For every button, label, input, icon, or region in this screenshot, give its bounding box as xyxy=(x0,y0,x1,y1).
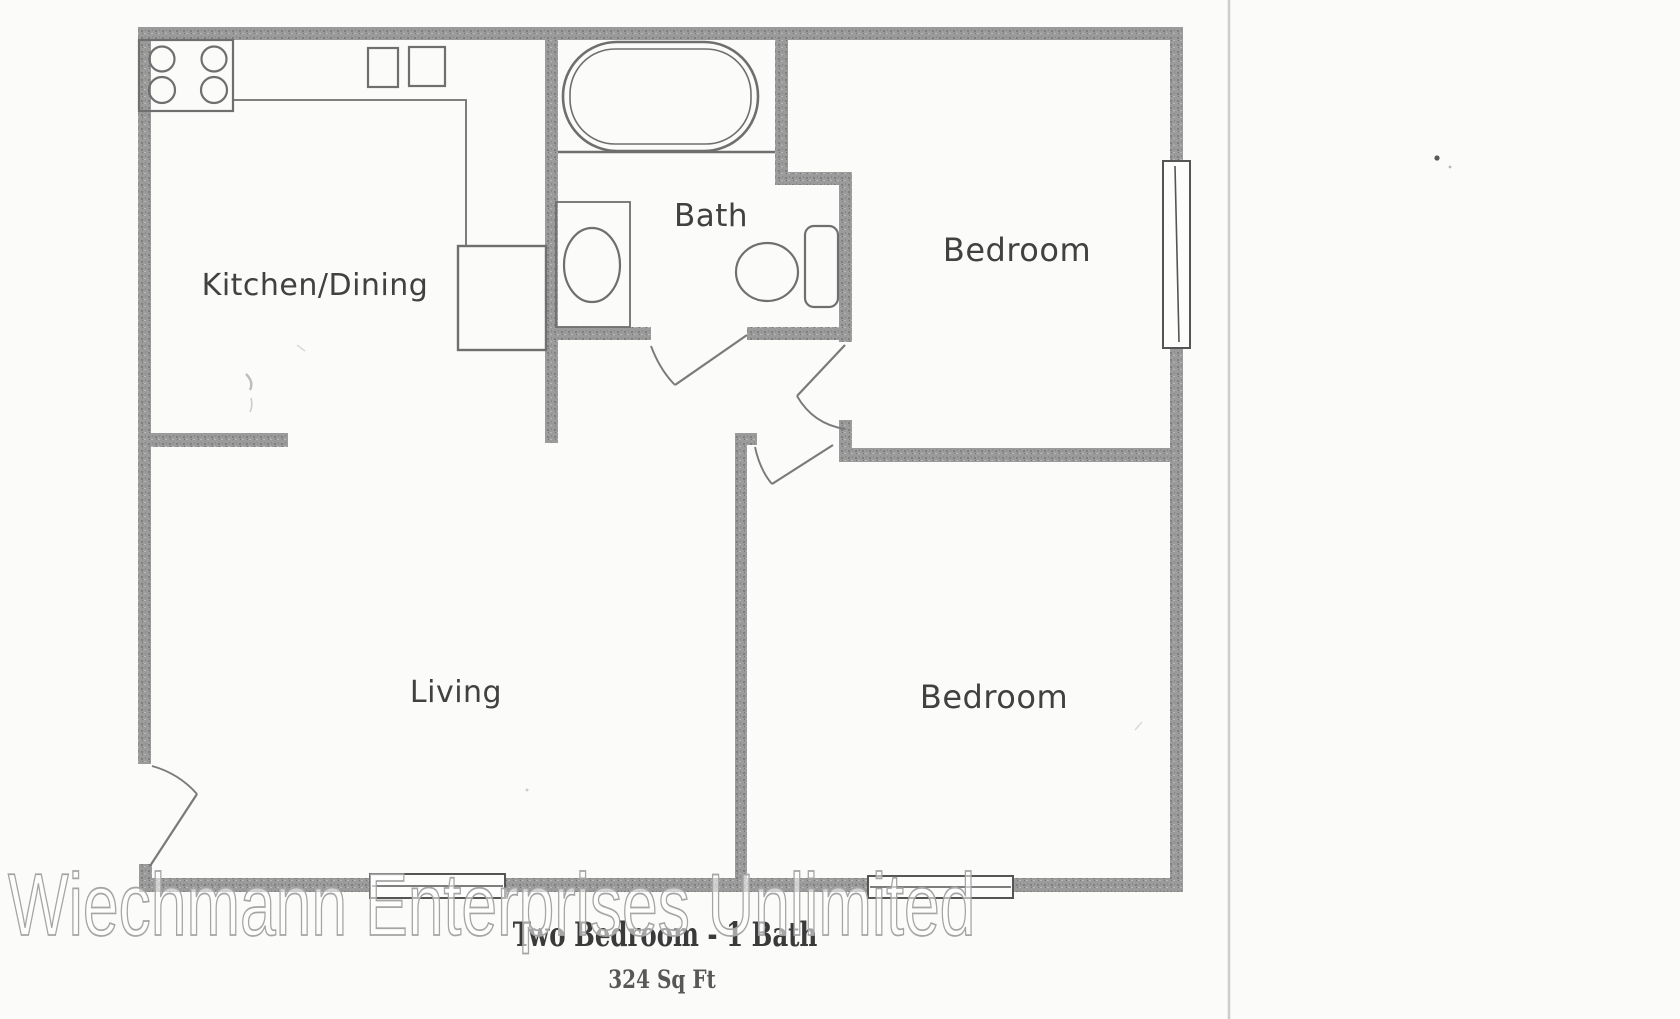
room-label-kitchen-dining: Kitchen/Dining xyxy=(202,268,429,303)
windows xyxy=(370,161,1190,898)
stove-burner-icon xyxy=(149,77,175,103)
stove-burner-icon xyxy=(150,47,175,72)
wall-bedroom2-left-tick xyxy=(735,433,757,445)
bath-door-swing-icon xyxy=(651,335,747,385)
counter-edge xyxy=(233,100,466,246)
room-label-bath: Bath xyxy=(674,198,748,234)
wall-bedroom2-left xyxy=(735,433,747,880)
stove-burner-icon xyxy=(201,77,227,103)
toilet-tank-icon xyxy=(805,226,838,307)
kitchen-sink-right-icon xyxy=(409,47,445,86)
wall-bath-bottom-left xyxy=(545,327,651,340)
wall-kitchen-living-stub xyxy=(151,433,288,447)
bedroom2-door-swing-icon xyxy=(755,445,833,484)
wall-bedroom1-left xyxy=(839,172,852,342)
wall-left-upper xyxy=(138,27,151,764)
room-label-bedroom-lower: Bedroom xyxy=(920,678,1068,716)
room-label-living: Living xyxy=(410,675,502,710)
wall-bath-bedroom-upper xyxy=(775,40,788,174)
walls xyxy=(138,27,1183,892)
watermark-text: Wiechmann Enterprises Unlimited xyxy=(8,856,975,954)
front-door-swing-icon xyxy=(150,766,197,866)
scan-smudge xyxy=(246,374,251,390)
room-label-bedroom-upper: Bedroom xyxy=(943,231,1091,269)
wall-right-lower xyxy=(1170,348,1183,892)
window-right-icon xyxy=(1163,161,1190,348)
stove-burner-icon xyxy=(202,47,227,72)
scan-speck xyxy=(994,456,997,459)
scanned-page: Kitchen/Dining Bath Bedroom Living Bedro… xyxy=(0,0,1680,1019)
wall-bedroom1-door-nub xyxy=(839,420,852,449)
scan-speck xyxy=(526,789,529,792)
plan-area: 324 Sq Ft xyxy=(608,966,716,995)
floorplan-drawing: Kitchen/Dining Bath Bedroom Living Bedro… xyxy=(0,0,1680,1019)
bathtub-inner-icon xyxy=(570,49,751,144)
kitchen-sink-left-icon xyxy=(368,48,398,87)
utility-closet xyxy=(458,246,546,350)
kitchen-fixtures xyxy=(139,40,546,350)
bathtub-icon xyxy=(563,42,758,151)
scan-smudge xyxy=(297,345,305,351)
wall-bath-bottom-right xyxy=(747,327,852,340)
toilet-bowl-icon xyxy=(736,243,798,301)
wall-bottom-segment-right xyxy=(1013,878,1183,892)
scan-speck xyxy=(1135,722,1142,730)
scan-smudge xyxy=(250,398,252,412)
wall-bedrooms-divider xyxy=(839,448,1183,462)
scan-speck xyxy=(1434,155,1439,160)
vanity-sink-icon xyxy=(564,228,620,302)
scan-speck xyxy=(1449,166,1452,169)
wall-top xyxy=(138,27,1183,40)
bedroom1-door-swing-icon xyxy=(797,345,845,429)
wall-right-upper xyxy=(1170,27,1183,162)
